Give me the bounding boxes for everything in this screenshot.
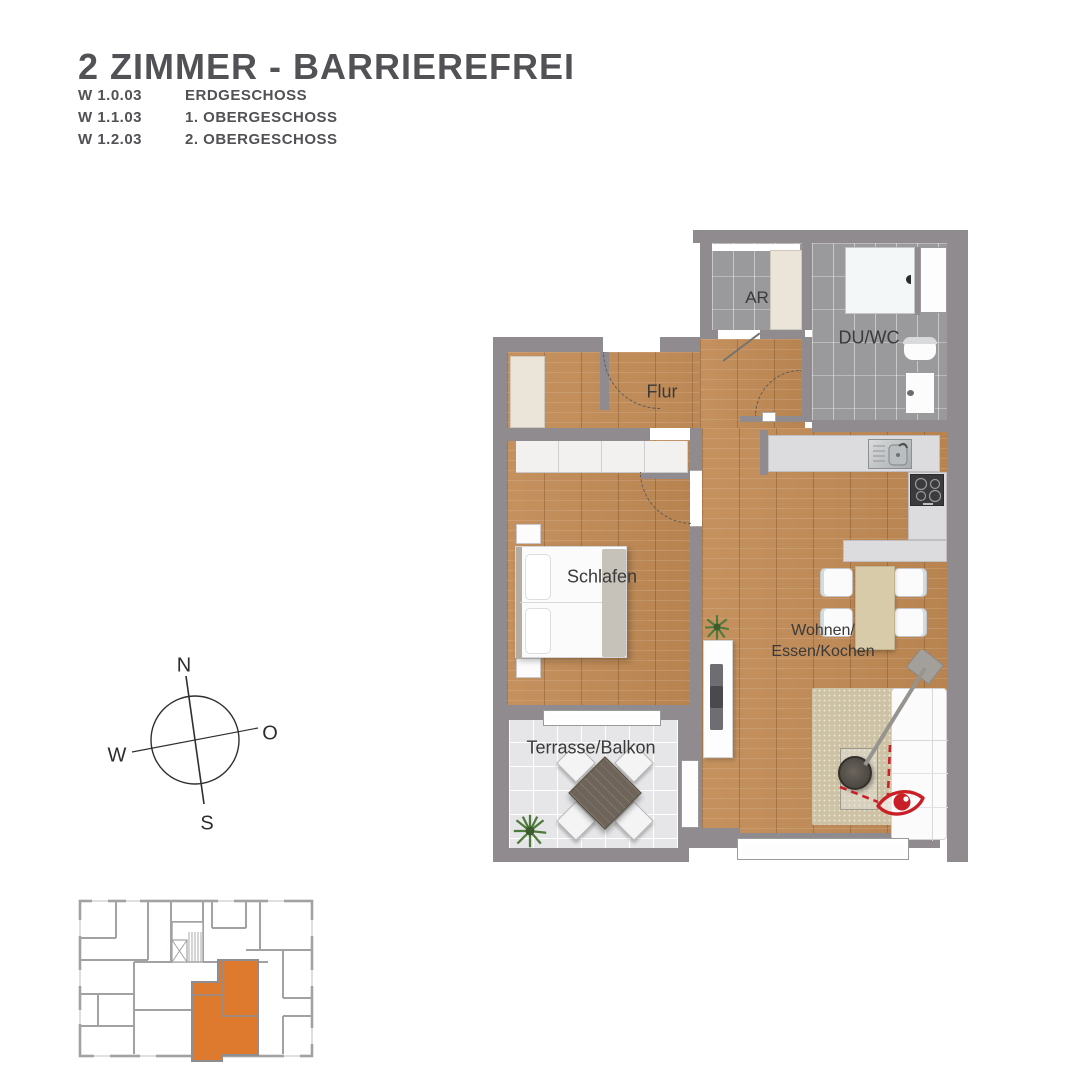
building-overview-plan [78, 898, 318, 1066]
viewpoint-eye-icon [878, 792, 923, 814]
compass-east-label: O [262, 723, 278, 746]
unit-floor: ERDGESCHOSS [185, 87, 307, 104]
dining-chair [894, 568, 927, 597]
viewpoint-overlay [793, 650, 968, 862]
kitchen-counter [843, 540, 947, 562]
kitchen-counter [768, 435, 940, 472]
toilet-cistern [903, 337, 937, 344]
dining-chair [820, 568, 853, 597]
shower [845, 247, 915, 314]
cooktop [910, 474, 944, 506]
bed-headboard [516, 547, 522, 659]
kitchen-sink-detail [869, 440, 913, 470]
unit-row: W 1.1.03 1. OBERGESCHOSS [78, 106, 338, 128]
room-label-schlafen: Schlafen [567, 567, 637, 588]
unit-list: W 1.0.03 ERDGESCHOSS W 1.1.03 1. OBERGES… [78, 84, 338, 150]
bed [515, 546, 627, 658]
wall [760, 330, 805, 339]
wall [493, 718, 509, 862]
page-title: 2 ZIMMER - BARRIEREFREI [78, 46, 575, 88]
compass-west-label: W [108, 745, 127, 768]
plant-icon [512, 812, 548, 850]
wall [493, 428, 650, 441]
compass: N O S W [100, 640, 290, 840]
wall [690, 428, 702, 470]
bathroom-window [920, 247, 947, 313]
view-direction-lines [840, 745, 890, 802]
room-label-wohnen-line2: Essen/Kochen [771, 641, 874, 662]
cooktop-burners [911, 475, 945, 507]
plant-icon [703, 612, 731, 642]
wall [812, 420, 947, 432]
unit-code: W 1.1.03 [78, 109, 185, 126]
unit-code: W 1.2.03 [78, 131, 185, 148]
wall [802, 243, 812, 330]
nightstand [516, 524, 541, 544]
room-label-duwc: DU/WC [839, 328, 900, 349]
wall [690, 525, 702, 718]
wall [700, 230, 712, 337]
floorplan-sheet: 2 ZIMMER - BARRIEREFREI W 1.0.03 ERDGESC… [0, 0, 1080, 1080]
wall [802, 337, 812, 422]
sink-faucet [907, 390, 914, 396]
floor-lamp-shade [907, 650, 944, 684]
unit-floor: 1. OBERGESCHOSS [185, 109, 338, 126]
wall [700, 330, 718, 339]
unit-row: W 1.0.03 ERDGESCHOSS [78, 84, 338, 106]
storage-shelf [770, 250, 802, 330]
plant [512, 812, 548, 850]
wall [760, 430, 768, 475]
terrace-door [681, 760, 699, 828]
shower-door-handle [906, 275, 911, 284]
floor-lamp-arm [865, 668, 925, 765]
kitchen-sink [868, 439, 912, 469]
bed-blanket [602, 549, 626, 657]
wall [493, 848, 689, 862]
room-label-wohnen: Wohnen/ Essen/Kochen [771, 620, 874, 662]
bed-pillow [525, 608, 551, 654]
room-label-ar: AR [745, 288, 769, 308]
bedroom-window [543, 710, 661, 726]
unit-floor: 2. OBERGESCHOSS [185, 131, 338, 148]
room-label-flur: Flur [647, 382, 678, 403]
main-floorplan: AR DU/WC Flur Schlafen Wohnen/ Essen/Koc… [493, 230, 968, 862]
wall [493, 337, 507, 718]
hall-wardrobe [510, 356, 545, 428]
dining-chair [894, 608, 927, 637]
compass-north-label: N [177, 655, 191, 678]
unit-row: W 1.2.03 2. OBERGESCHOSS [78, 128, 338, 150]
wall [493, 337, 603, 352]
wall [693, 230, 968, 243]
tv [710, 664, 723, 730]
bed-pillow [525, 554, 551, 600]
building-overview-drawing [78, 898, 318, 1066]
compass-south-label: S [200, 813, 213, 836]
room-label-terrasse: Terrasse/Balkon [526, 738, 655, 759]
room-label-wohnen-line1: Wohnen/ [771, 620, 874, 641]
nightstand [516, 658, 541, 678]
unit-code: W 1.0.03 [78, 87, 185, 104]
wall [660, 337, 700, 352]
wardrobe [516, 441, 688, 473]
plant [703, 612, 731, 642]
